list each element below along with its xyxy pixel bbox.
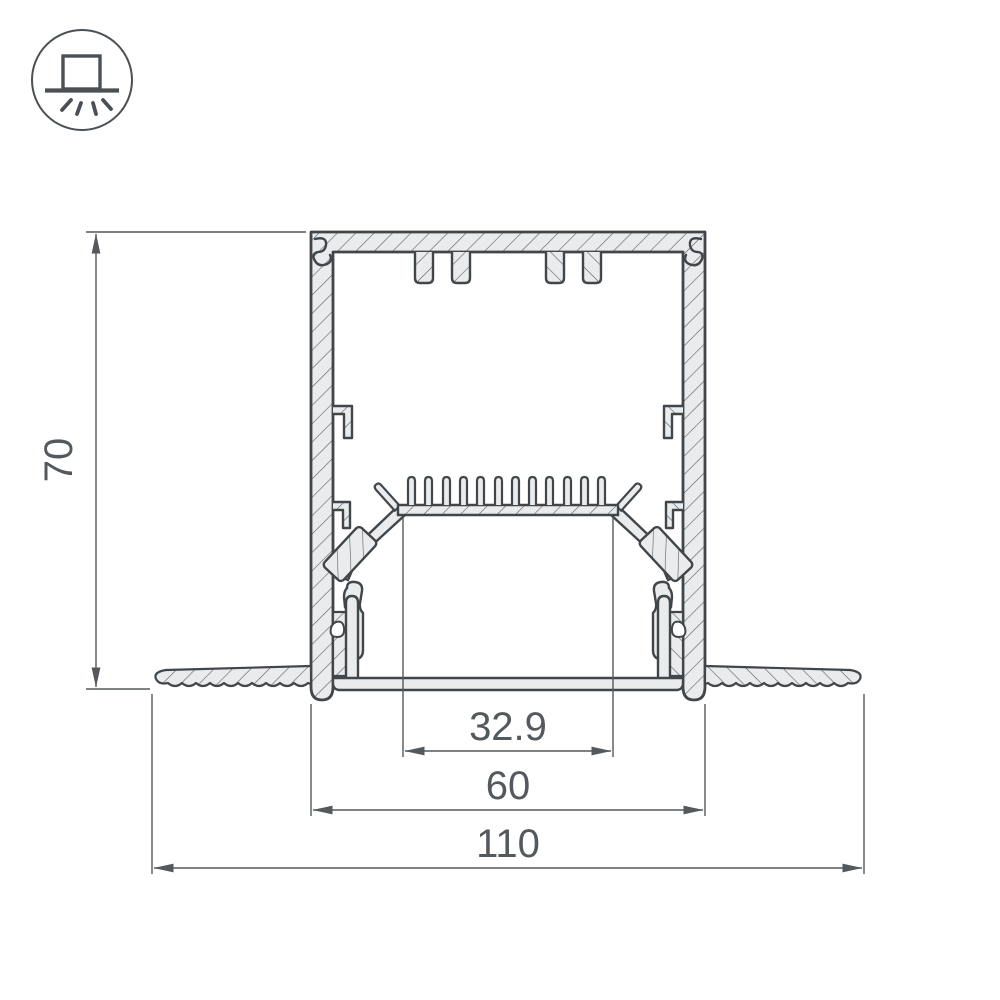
heatsink-fins [408,477,605,505]
diffuser-bottom-lip [333,678,683,690]
icon-light-rays [62,100,111,114]
dimension-label-height: 70 [37,438,81,483]
profile-section [155,232,860,700]
icon-circle [32,30,132,130]
profile-shell [311,232,705,700]
heatsink-base [398,505,618,515]
heatsink-plate [398,477,618,515]
dimension-label-window: 32.9 [469,705,547,749]
drawing-canvas: 70 32.9 60 110 [0,0,1000,1000]
icon-fixture-box [63,56,100,89]
dimensions: 70 32.9 60 110 [37,232,864,874]
recessed-downlight-icon [32,30,132,130]
dimension-label-overall: 110 [476,822,540,866]
dimension-height-70: 70 [37,232,306,689]
dimension-window-32-9: 32.9 [403,518,613,757]
dimension-label-body: 60 [486,764,531,808]
profile-cross-section-drawing: 70 32.9 60 110 [0,0,1000,1000]
